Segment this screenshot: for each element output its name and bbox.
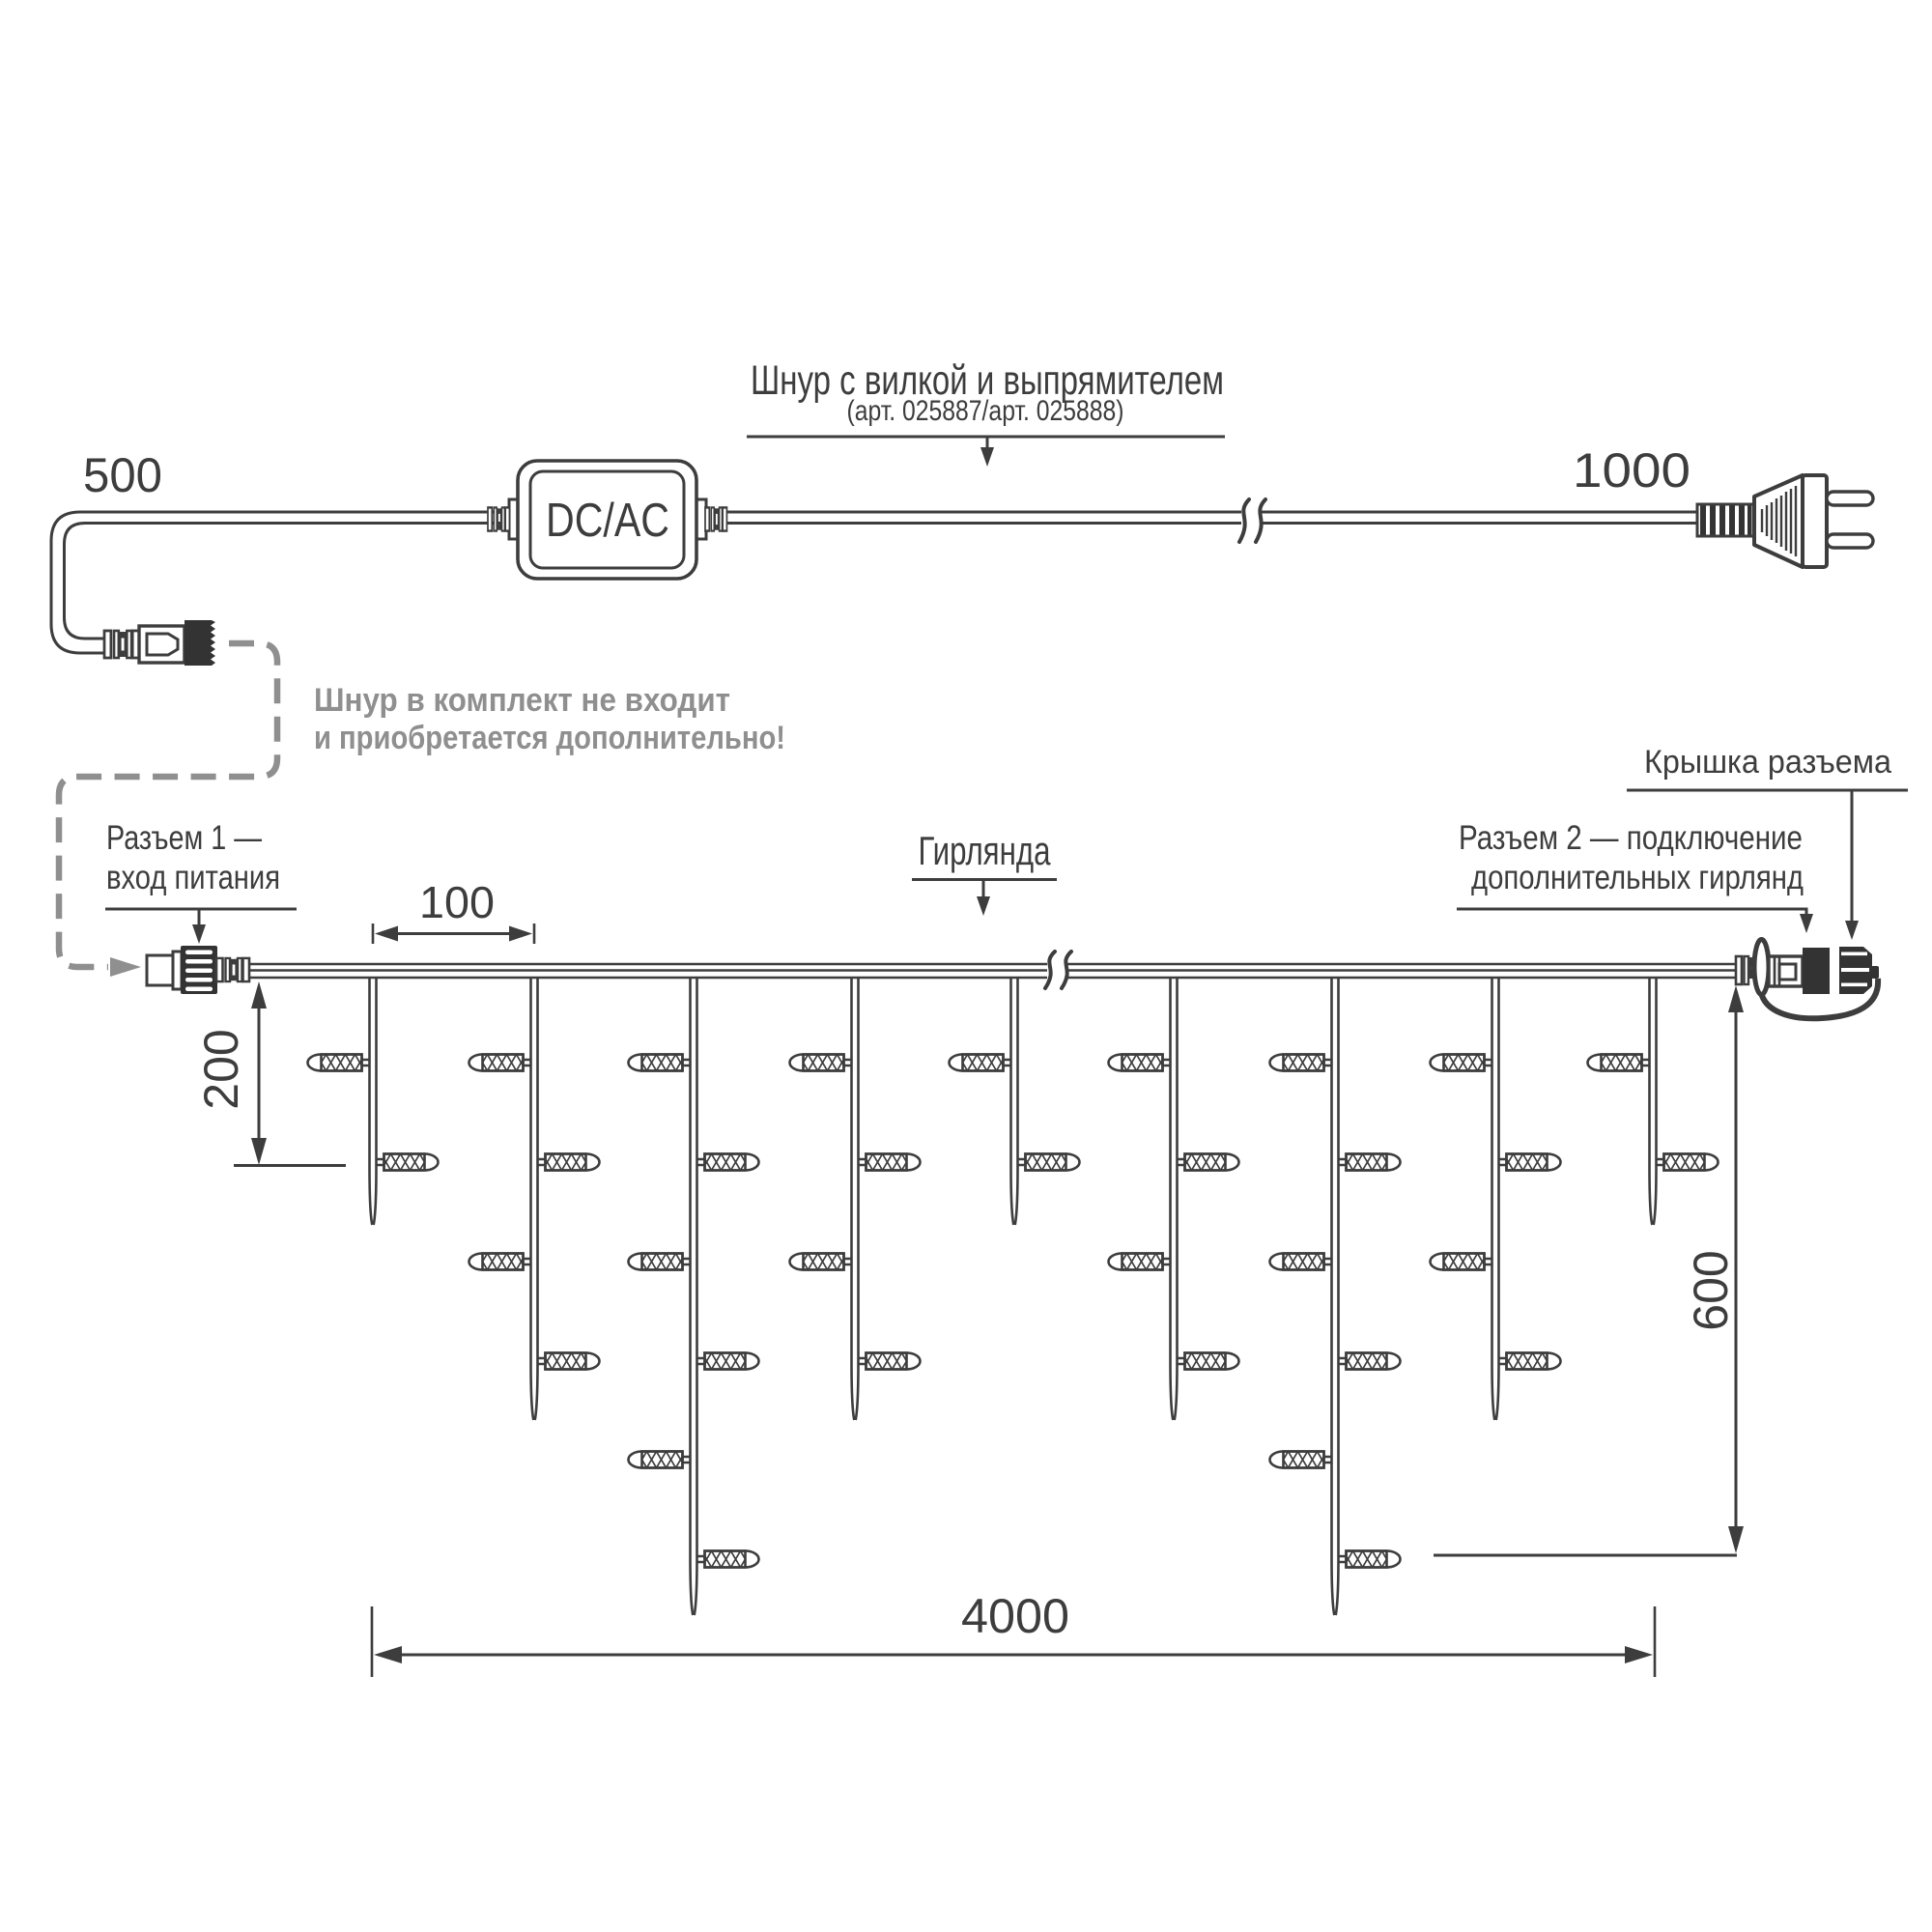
svg-text:Гирлянда: Гирлянда	[919, 828, 1051, 873]
svg-text:100: 100	[419, 877, 495, 927]
svg-text:4000: 4000	[961, 1589, 1069, 1643]
svg-text:Разъем 1 —: Разъем 1 —	[106, 819, 262, 857]
svg-text:1000: 1000	[1573, 443, 1690, 497]
svg-text:600: 600	[1684, 1250, 1738, 1330]
svg-text:Разъем 2 — подключение: Разъем 2 — подключение	[1459, 819, 1803, 857]
svg-text:200: 200	[194, 1029, 248, 1109]
svg-text:500: 500	[83, 448, 162, 502]
svg-text:вход питания: вход питания	[106, 859, 280, 896]
svg-text:(арт. 025887/арт. 025888): (арт. 025887/арт. 025888)	[847, 395, 1124, 427]
svg-text:DC/AC: DC/AC	[546, 495, 669, 547]
svg-text:и приобретается дополнительно!: и приобретается дополнительно!	[314, 720, 785, 756]
svg-text:Шнур в комплект не входит: Шнур в комплект не входит	[314, 682, 730, 719]
svg-text:дополнительных гирлянд: дополнительных гирлянд	[1471, 859, 1804, 896]
svg-text:Крышка разъема: Крышка разъема	[1644, 744, 1891, 781]
